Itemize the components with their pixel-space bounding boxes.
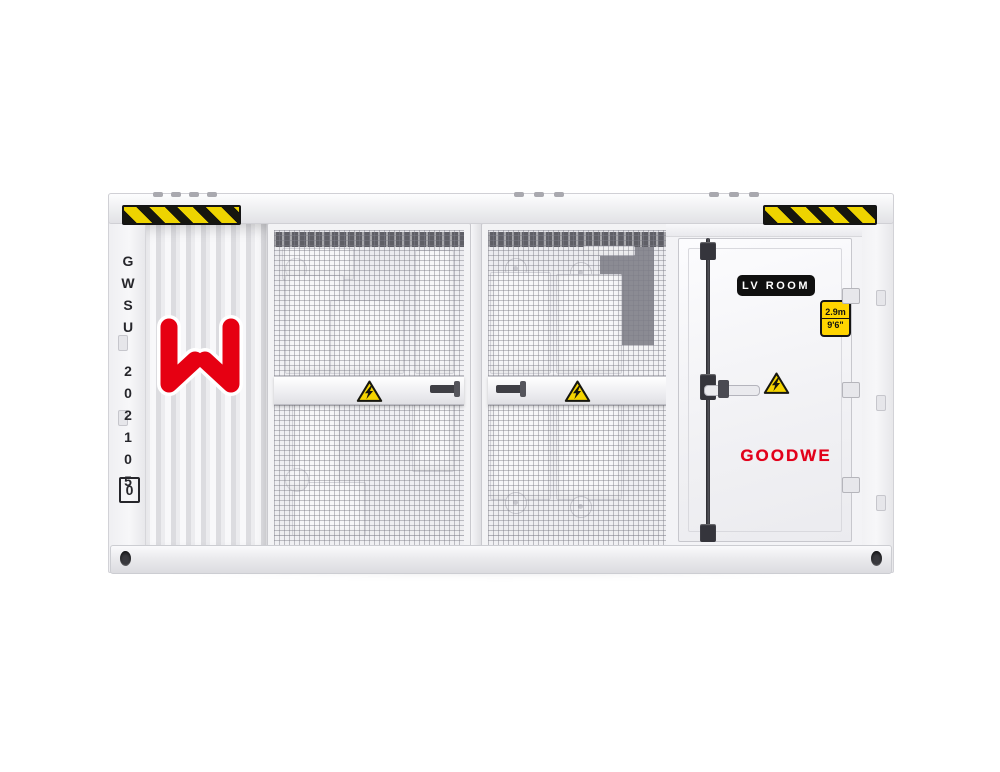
rail-bump [729, 192, 739, 197]
badge-metric-height: 2.9m [822, 306, 849, 318]
door-hinge [842, 382, 860, 398]
product-photo-stage: LV ROOM 2.9m 9'6" GOODWE [0, 0, 1000, 772]
height-warning-badge: 2.9m 9'6" [820, 300, 851, 337]
door-lock-hub [718, 380, 729, 398]
high-voltage-triangle-icon [763, 371, 790, 395]
corner-casting-hole-icon [120, 551, 131, 566]
rail-bump [153, 192, 163, 197]
rail-bump [171, 192, 181, 197]
door-latch [430, 385, 456, 393]
container-serial-code: GWSU 202105 [120, 253, 136, 495]
high-voltage-triangle-icon [356, 379, 383, 403]
rail-bump [534, 192, 544, 197]
bottom-rail [110, 545, 892, 574]
mesh-door-bay-1 [268, 224, 470, 562]
badge-imperial-height: 9'6" [822, 318, 849, 331]
door-crossbar [488, 376, 666, 405]
hazard-stripe-icon [763, 205, 877, 225]
door-handle [704, 385, 760, 396]
corner-casting-hole-icon [871, 551, 882, 566]
rod-keeper [700, 524, 716, 542]
door-hinge [842, 477, 860, 493]
rail-bump [189, 192, 199, 197]
rail-bump [709, 192, 719, 197]
rod-keeper [700, 242, 716, 260]
container-check-digit: 0 [119, 477, 140, 503]
door-hinge [842, 288, 860, 304]
rail-bump [514, 192, 524, 197]
lashing-tab [876, 495, 886, 511]
lv-room-plate: LV ROOM [737, 275, 815, 296]
hazard-stripe-icon [122, 205, 241, 225]
battery-storage-container: LV ROOM 2.9m 9'6" GOODWE [108, 193, 892, 572]
goodwe-wordmark: GOODWE [716, 446, 856, 466]
rail-bump [554, 192, 564, 197]
lashing-tab [876, 290, 886, 306]
lashing-tab [876, 395, 886, 411]
mesh-door-bay-2 [482, 224, 672, 562]
lv-room-section: LV ROOM 2.9m 9'6" GOODWE [666, 222, 862, 550]
rail-bump [207, 192, 217, 197]
door-crossbar [274, 376, 464, 405]
high-voltage-triangle-icon [564, 379, 591, 403]
door-latch [496, 385, 522, 393]
goodwe-w-mark-icon [150, 312, 250, 408]
rail-bump [749, 192, 759, 197]
